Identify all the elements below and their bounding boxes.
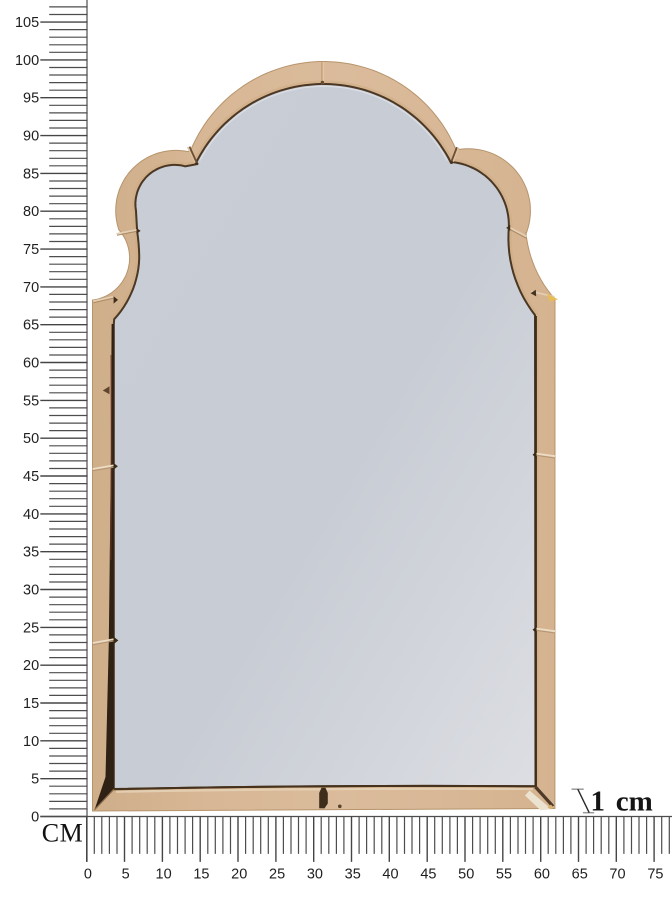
- svg-text:100: 100: [15, 53, 39, 69]
- svg-text:50: 50: [458, 867, 474, 883]
- svg-text:35: 35: [345, 867, 361, 883]
- svg-text:105: 105: [15, 15, 39, 31]
- svg-text:25: 25: [269, 867, 285, 883]
- svg-text:45: 45: [420, 867, 436, 883]
- svg-text:65: 65: [572, 867, 588, 883]
- svg-text:70: 70: [23, 280, 39, 296]
- svg-text:60: 60: [23, 356, 39, 372]
- svg-text:40: 40: [23, 507, 39, 523]
- svg-text:CM: CM: [42, 819, 83, 848]
- svg-text:70: 70: [609, 867, 625, 883]
- svg-text:25: 25: [23, 620, 39, 636]
- svg-text:65: 65: [23, 318, 39, 334]
- svg-text:50: 50: [23, 431, 39, 447]
- svg-text:20: 20: [231, 867, 247, 883]
- svg-text:55: 55: [496, 867, 512, 883]
- svg-text:15: 15: [193, 867, 209, 883]
- svg-text:90: 90: [23, 129, 39, 145]
- svg-text:30: 30: [23, 583, 39, 599]
- svg-text:5: 5: [31, 772, 39, 788]
- svg-text:80: 80: [23, 204, 39, 220]
- svg-text:0: 0: [31, 810, 39, 826]
- svg-text:10: 10: [156, 867, 172, 883]
- svg-text:20: 20: [23, 658, 39, 674]
- svg-text:75: 75: [23, 242, 39, 258]
- svg-text:55: 55: [23, 393, 39, 409]
- svg-text:75: 75: [647, 867, 663, 883]
- svg-text:60: 60: [534, 867, 550, 883]
- svg-text:45: 45: [23, 469, 39, 485]
- svg-text:1 cm: 1 cm: [591, 786, 653, 818]
- svg-text:95: 95: [23, 91, 39, 107]
- svg-text:40: 40: [382, 867, 398, 883]
- svg-text:0: 0: [84, 867, 92, 883]
- svg-text:30: 30: [307, 867, 323, 883]
- svg-text:5: 5: [122, 867, 130, 883]
- svg-text:15: 15: [23, 696, 39, 712]
- svg-text:35: 35: [23, 545, 39, 561]
- svg-text:85: 85: [23, 166, 39, 182]
- svg-text:10: 10: [23, 734, 39, 750]
